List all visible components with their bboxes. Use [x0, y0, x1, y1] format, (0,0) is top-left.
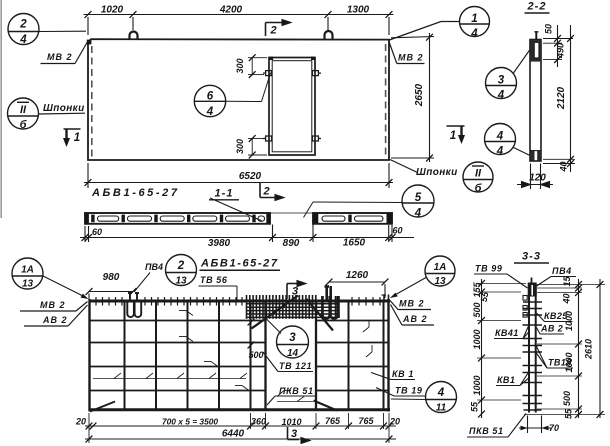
svg-text:11: 11	[436, 403, 447, 414]
svg-text:300: 300	[235, 58, 245, 73]
svg-text:2: 2	[269, 25, 276, 37]
svg-text:б: б	[475, 183, 483, 195]
svg-text:МВ 2: МВ 2	[399, 299, 425, 309]
svg-text:5: 5	[415, 192, 422, 204]
svg-text:4: 4	[437, 387, 445, 399]
svg-text:1300: 1300	[347, 5, 370, 16]
svg-text:АВ 2: АВ 2	[42, 315, 68, 325]
svg-text:ТВ 56: ТВ 56	[200, 275, 228, 285]
svg-text:3980: 3980	[208, 238, 231, 249]
svg-text:50: 50	[544, 24, 554, 34]
svg-text:1260: 1260	[346, 270, 369, 281]
svg-text:700 x 5 = 3500: 700 x 5 = 3500	[162, 417, 218, 427]
svg-text:4: 4	[206, 106, 214, 118]
svg-text:ПКВ 51: ПКВ 51	[279, 386, 314, 396]
svg-text:4200: 4200	[219, 5, 243, 16]
svg-text:2: 2	[262, 186, 269, 198]
svg-text:500: 500	[472, 302, 482, 317]
svg-text:2120: 2120	[556, 86, 567, 110]
svg-text:1010: 1010	[281, 417, 301, 427]
svg-text:3: 3	[292, 286, 298, 298]
svg-text:II: II	[475, 168, 482, 180]
svg-text:2: 2	[19, 19, 27, 31]
svg-text:2650: 2650	[414, 83, 425, 107]
svg-text:6: 6	[207, 91, 214, 103]
svg-text:1000: 1000	[564, 311, 574, 331]
svg-text:300: 300	[235, 139, 245, 154]
svg-text:6520: 6520	[239, 171, 262, 182]
svg-text:70: 70	[549, 423, 559, 433]
svg-text:АВ 2: АВ 2	[402, 314, 428, 324]
svg-text:500: 500	[562, 391, 572, 406]
svg-text:МВ 2: МВ 2	[40, 300, 66, 310]
svg-text:13: 13	[22, 279, 34, 290]
svg-text:40: 40	[559, 161, 569, 172]
svg-text:1А: 1А	[21, 265, 34, 276]
svg-text:14: 14	[287, 348, 299, 359]
svg-text:4: 4	[496, 131, 504, 143]
svg-text:55: 55	[470, 401, 480, 412]
svg-text:3: 3	[498, 75, 505, 87]
svg-text:1А: 1А	[434, 262, 447, 273]
svg-text:АВ 2: АВ 2	[540, 324, 563, 334]
svg-text:40: 40	[562, 293, 572, 304]
svg-text:3: 3	[291, 428, 297, 440]
svg-text:АБВ1-65-27: АБВ1-65-27	[200, 258, 279, 270]
svg-text:20: 20	[75, 417, 86, 427]
svg-text:ТВ 19: ТВ 19	[395, 386, 423, 396]
svg-text:3-3: 3-3	[522, 251, 541, 263]
svg-text:ПВ4: ПВ4	[145, 262, 163, 272]
svg-text:60: 60	[392, 226, 402, 236]
svg-text:б: б	[20, 119, 28, 131]
svg-text:500: 500	[248, 350, 263, 360]
svg-text:2610: 2610	[584, 339, 594, 360]
svg-text:2-2: 2-2	[527, 1, 547, 13]
svg-text:6440: 6440	[222, 429, 245, 440]
svg-text:АБВ1-65-27: АБВ1-65-27	[91, 187, 180, 199]
svg-text:ТВ 121: ТВ 121	[279, 361, 312, 371]
svg-text:1: 1	[74, 132, 80, 144]
svg-text:1020: 1020	[101, 5, 124, 16]
svg-text:1000: 1000	[472, 329, 482, 349]
svg-text:Шпонки: Шпонки	[416, 167, 458, 178]
svg-text:ПКВ 51: ПКВ 51	[469, 426, 504, 436]
svg-text:4: 4	[414, 208, 422, 220]
svg-text:13: 13	[175, 276, 187, 287]
svg-text:13: 13	[434, 276, 446, 287]
svg-text:1000: 1000	[472, 375, 482, 395]
svg-text:ТВ 99: ТВ 99	[475, 264, 503, 274]
svg-text:765: 765	[325, 416, 341, 426]
svg-text:КВ 1: КВ 1	[392, 369, 414, 379]
svg-text:3: 3	[289, 332, 296, 344]
svg-text:1: 1	[450, 130, 456, 142]
svg-text:1000: 1000	[564, 352, 574, 372]
svg-text:765: 765	[358, 416, 374, 426]
svg-text:4: 4	[496, 146, 504, 158]
svg-text:4: 4	[19, 34, 27, 46]
svg-text:55: 55	[564, 408, 574, 419]
svg-text:890: 890	[283, 238, 300, 249]
svg-text:20: 20	[389, 417, 400, 427]
svg-text:МВ 2: МВ 2	[47, 52, 73, 62]
svg-text:4: 4	[470, 28, 478, 40]
svg-text:360: 360	[251, 417, 266, 427]
svg-text:МВ 2: МВ 2	[398, 53, 424, 63]
svg-text:4: 4	[497, 90, 505, 102]
svg-text:1650: 1650	[343, 238, 366, 249]
svg-text:КВ41: КВ41	[495, 328, 519, 338]
svg-text:Шпонки: Шпонки	[43, 103, 85, 114]
svg-text:1: 1	[471, 13, 477, 25]
svg-text:15: 15	[562, 276, 572, 287]
svg-text:КВ1: КВ1	[497, 375, 515, 385]
svg-text:120: 120	[529, 173, 546, 184]
svg-text:2: 2	[177, 260, 185, 272]
svg-text:980: 980	[103, 272, 120, 283]
svg-text:II: II	[20, 104, 27, 116]
svg-text:60: 60	[92, 227, 102, 237]
svg-text:490: 490	[556, 43, 566, 59]
svg-text:ПВ4: ПВ4	[552, 266, 572, 276]
svg-text:1-1: 1-1	[215, 188, 234, 200]
